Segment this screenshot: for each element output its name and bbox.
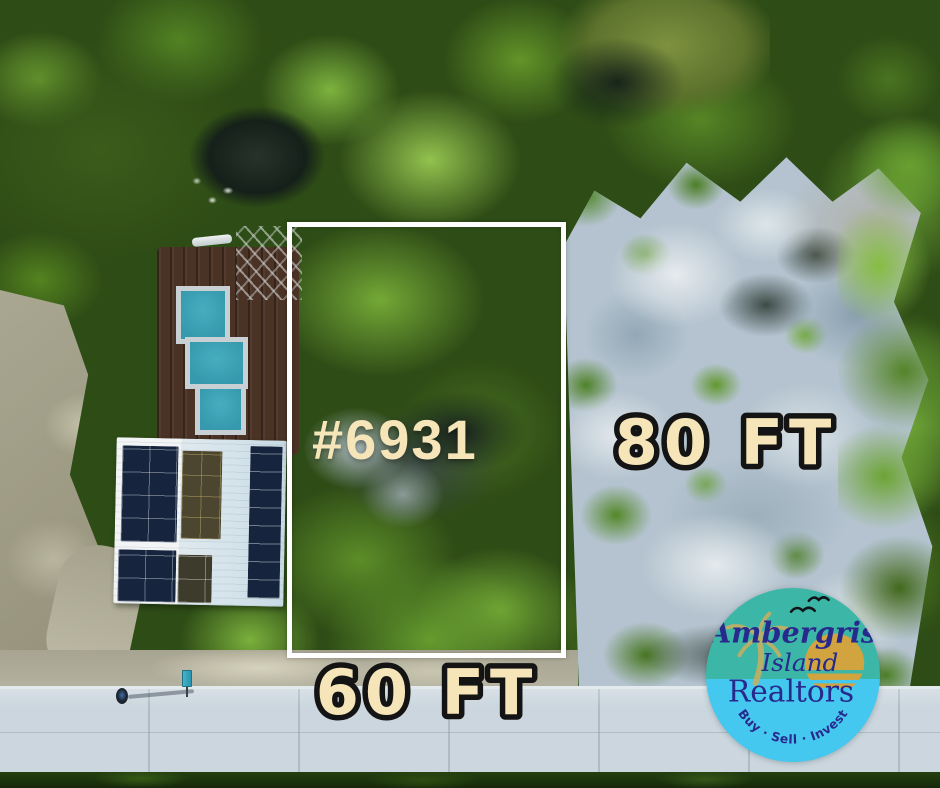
lot-depth-dimension: 80 FT	[576, 398, 876, 488]
house-metal-roof	[113, 437, 286, 607]
solar-panel-array	[181, 451, 223, 540]
logo-name-line2: Island	[761, 648, 839, 677]
solar-panel-array	[177, 555, 212, 604]
marsh-grass-patch	[515, 0, 770, 150]
frontage-label-text: 60 FT	[316, 656, 539, 729]
swimming-pool-lower-section	[195, 383, 246, 435]
bottom-vegetation-strip	[0, 772, 940, 788]
lot-number-label: #6931	[312, 412, 522, 472]
swimming-pool-middle-section	[185, 337, 248, 389]
aerial-listing-photo: #6931 80 FT 60 FT	[0, 0, 940, 788]
realtor-logo-badge: Ambergris Island Realtors Buy · Sell · I…	[704, 586, 882, 764]
solar-panel-array	[121, 445, 179, 542]
right-edge-trees	[838, 30, 940, 650]
solar-panel-array	[247, 446, 282, 599]
pedestrian	[116, 688, 128, 704]
lot-frontage-dimension: 60 FT	[277, 648, 577, 738]
mud-clearing-with-debris	[150, 85, 345, 245]
logo-name-line3: Realtors	[728, 674, 854, 709]
roadside-sign	[182, 670, 192, 687]
depth-label-text: 80 FT	[615, 406, 838, 479]
sign-post	[186, 687, 188, 697]
solar-panel-array	[117, 549, 176, 602]
swimming-pool-upper-section	[176, 286, 230, 344]
logo-name-line1: Ambergris	[706, 615, 877, 649]
